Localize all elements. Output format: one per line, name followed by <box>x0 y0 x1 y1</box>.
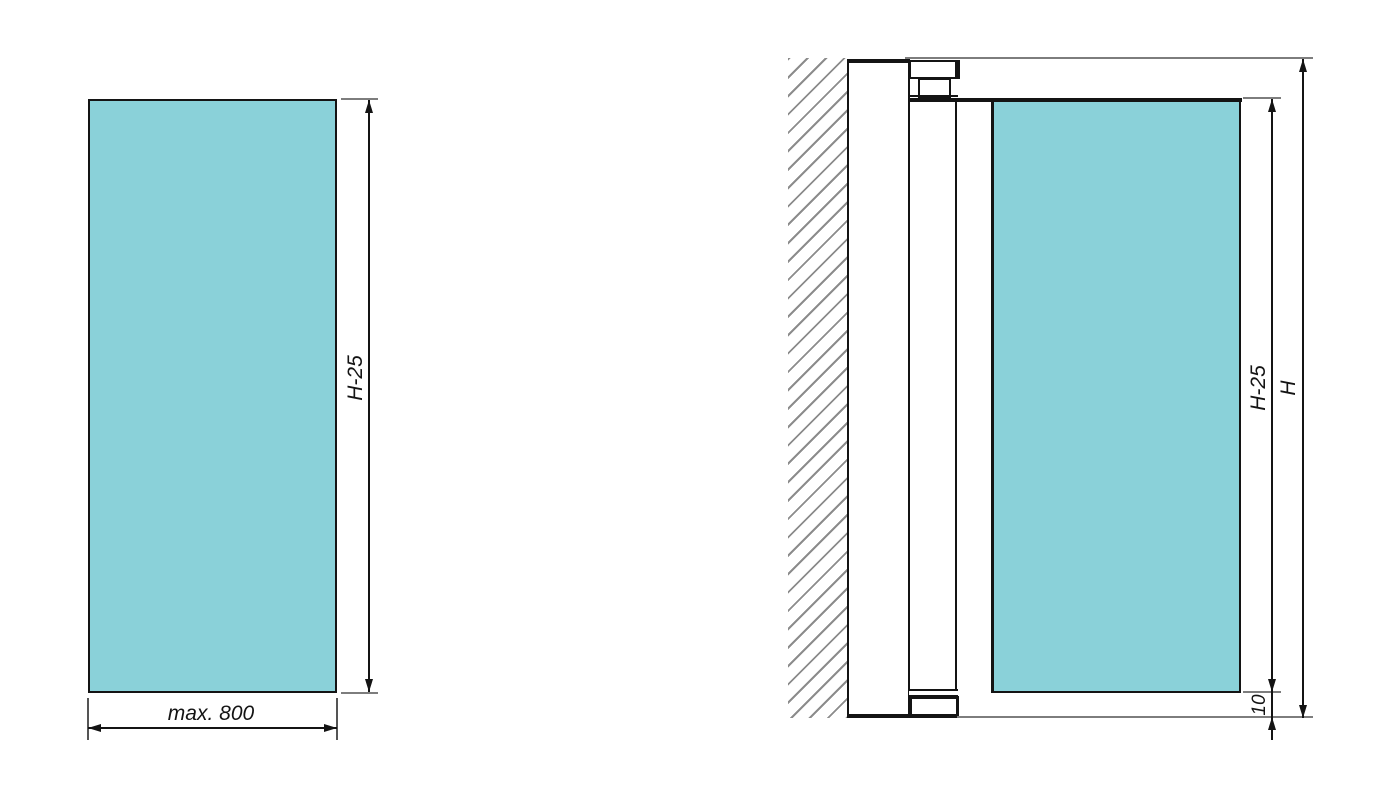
front-width-dimension-label: max. 800 <box>168 702 254 726</box>
section-panel-glass <box>991 102 1241 693</box>
bottom-bracket <box>909 696 959 717</box>
section-panel-height-label: H-25 <box>1247 365 1271 411</box>
arrowhead-up-icon <box>365 100 373 113</box>
front-height-dimension-label: H-25 <box>344 355 368 401</box>
front-width-dimension-line <box>88 727 337 729</box>
arrowhead-left-icon <box>88 724 101 732</box>
front-extension-line-bottom-right <box>341 692 378 694</box>
arrowhead-down-icon <box>1299 705 1307 718</box>
front-panel-glass <box>88 99 337 693</box>
section-panel-height-dimension-line <box>1271 99 1273 740</box>
wall-face-line <box>847 59 849 718</box>
technical-drawing-canvas: H-25 max. 800 H-25 10 H <box>0 0 1390 800</box>
front-width-extension-line-left <box>87 698 89 740</box>
top-bracket-housing <box>909 60 960 79</box>
roller-tube-right-edge <box>955 102 957 690</box>
total-height-extension-line-top <box>905 57 1313 59</box>
arrowhead-up-icon <box>1268 717 1276 730</box>
arrowhead-down-icon <box>365 679 373 692</box>
floor-extension-line <box>957 716 1313 718</box>
front-height-dimension-line <box>368 100 370 692</box>
roller-top-cap-line <box>909 95 958 97</box>
arrowhead-up-icon <box>1268 99 1276 112</box>
arrowhead-down-icon <box>1268 679 1276 692</box>
wall-profile-top-edge <box>847 59 910 63</box>
total-height-dimension-line <box>1302 59 1304 718</box>
arrowhead-right-icon <box>324 724 337 732</box>
arrowhead-up-icon <box>1299 59 1307 72</box>
total-height-label: H <box>1277 380 1301 395</box>
bottom-gap-label: 10 <box>1249 694 1271 715</box>
wall-profile-right-edge <box>908 60 910 718</box>
front-width-extension-line-right <box>336 698 338 740</box>
wall-hatching <box>788 58 848 718</box>
